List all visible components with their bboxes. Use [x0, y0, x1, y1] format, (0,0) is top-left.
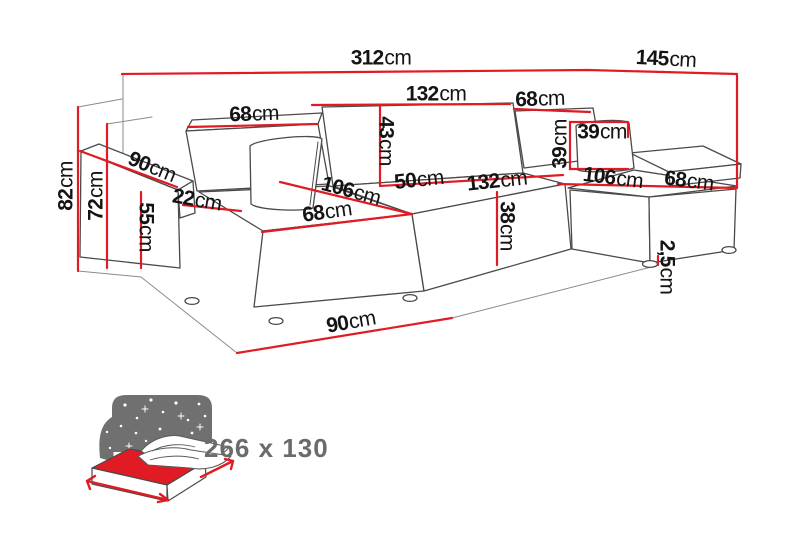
- dimension-value: 38: [496, 201, 519, 223]
- dimension-unit: cm: [416, 166, 445, 192]
- dimension-value: 39: [549, 147, 572, 169]
- dimension-value: 22: [171, 184, 196, 210]
- dimension-value: 2,5: [656, 240, 679, 267]
- dimension-unit: cm: [615, 167, 644, 193]
- dimension-label-back-cushion-left-width: 68cm: [229, 103, 279, 126]
- dimension-label-leg-height: 2,5cm: [657, 240, 678, 295]
- dimension-unit: cm: [669, 48, 697, 72]
- dimension-label-back-cushion-height: 43cm: [376, 116, 397, 166]
- dimension-value: 68: [515, 88, 538, 112]
- dimension-label-pillow-height: 39cm: [550, 119, 571, 169]
- dimension-unit: cm: [375, 139, 398, 166]
- dimension-value: 72: [85, 199, 108, 221]
- dimension-label-back-cushion-middle-width: 132cm: [406, 84, 466, 105]
- dimension-unit: cm: [323, 197, 353, 224]
- dimension-unit: cm: [193, 188, 223, 215]
- dimension-value: 90: [325, 311, 350, 337]
- dimension-label-pillow-width: 39cm: [577, 122, 627, 143]
- dimension-value: 132: [466, 169, 501, 195]
- dimension-value: 43: [375, 116, 398, 138]
- dimension-value: 106: [582, 163, 617, 190]
- dimension-value: 68: [301, 201, 326, 227]
- dimension-value: 55: [135, 202, 158, 224]
- dimension-unit: cm: [656, 268, 679, 295]
- sofa-dimension-diagram: 312cm145cm132cm68cm68cm43cm39cm39cm90cm2…: [0, 0, 800, 533]
- dimension-value: 132: [406, 83, 439, 106]
- dimension-label-total-depth-right: 145cm: [635, 47, 696, 71]
- sofa-line-drawing: [0, 0, 800, 533]
- dimension-value: 68: [663, 167, 687, 192]
- dimension-unit: cm: [85, 171, 108, 198]
- dimension-label-total-width: 312cm: [351, 48, 411, 69]
- dimension-value: 50: [393, 169, 417, 194]
- dimension-value: 39: [577, 121, 599, 144]
- dimension-unit: cm: [686, 169, 715, 195]
- dimension-unit: cm: [439, 83, 466, 106]
- dimension-value: 145: [635, 46, 669, 71]
- dimension-unit: cm: [252, 102, 280, 126]
- dimension-unit: cm: [384, 47, 411, 70]
- dimension-value: 312: [351, 47, 384, 70]
- dimension-label-armrest-right-width: 68cm: [663, 168, 715, 195]
- dimension-label-armrest-height: 55cm: [136, 202, 157, 252]
- dimension-unit: cm: [549, 119, 572, 146]
- dimension-label-total-height: 82cm: [56, 161, 77, 211]
- dimension-unit: cm: [496, 224, 519, 251]
- dimension-unit: cm: [135, 225, 158, 252]
- dimension-value: 82: [55, 189, 78, 211]
- dimension-label-seat-height: 38cm: [497, 201, 518, 251]
- sleeping-area-dimensions: 266 x 130: [204, 435, 329, 461]
- dimension-label-seat-depth: 50cm: [393, 167, 444, 193]
- dimension-value: 68: [229, 103, 252, 127]
- dimension-label-backrest-height: 72cm: [86, 171, 107, 221]
- dimension-unit: cm: [499, 166, 528, 192]
- dimension-unit: cm: [538, 87, 566, 111]
- dimension-label-back-cushion-right-width: 68cm: [515, 88, 565, 111]
- dimension-unit: cm: [55, 161, 78, 188]
- dimension-unit: cm: [600, 121, 627, 144]
- dimension-unit: cm: [347, 306, 377, 333]
